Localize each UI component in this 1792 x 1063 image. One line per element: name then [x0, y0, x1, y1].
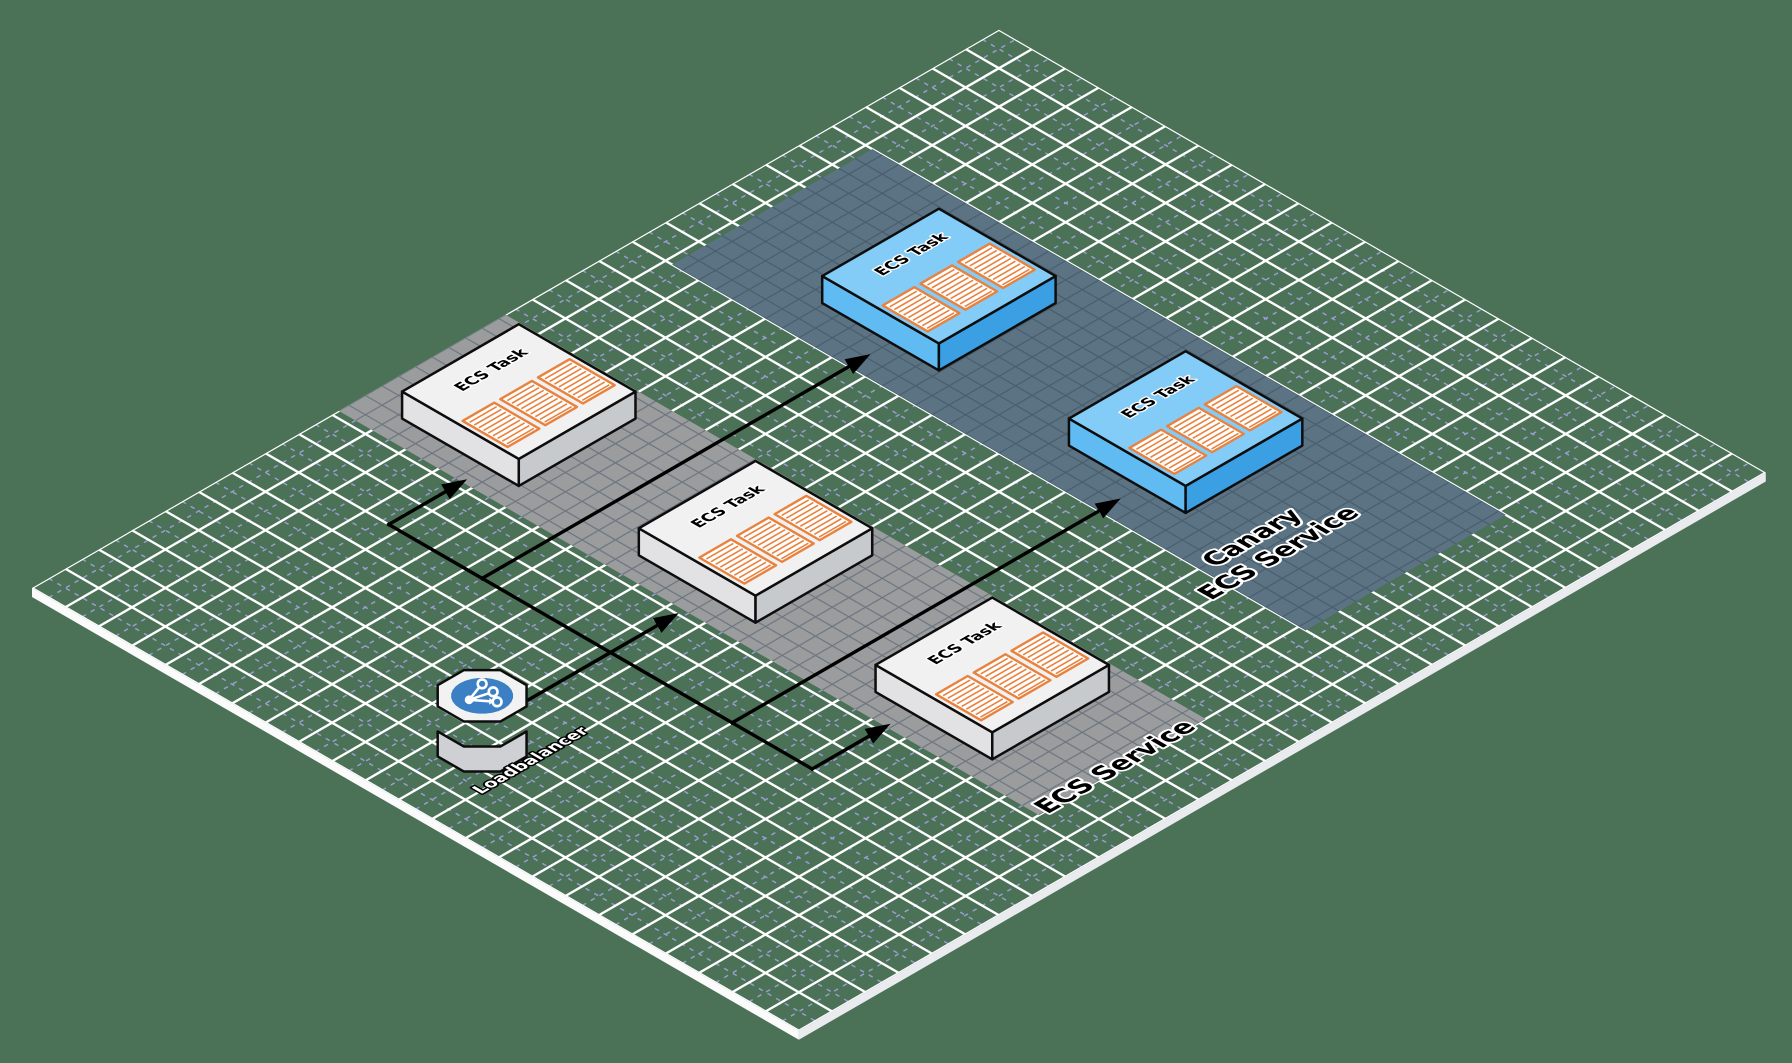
diagram-canvas: ECS TaskECS TaskECS TaskECS TaskECS Task… — [0, 0, 1792, 1063]
iso-architecture-diagram: ECS TaskECS TaskECS TaskECS TaskECS Task… — [0, 0, 1792, 1063]
